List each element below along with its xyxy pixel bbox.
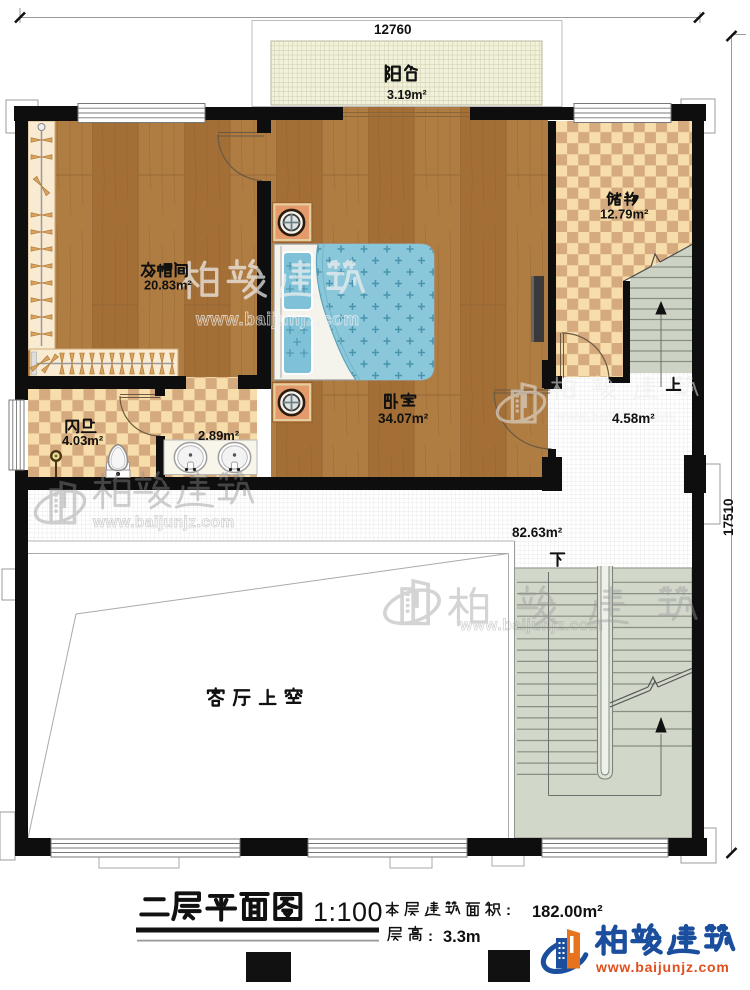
- svg-text:4.03m²: 4.03m²: [62, 433, 104, 448]
- svg-text::: :: [506, 902, 511, 919]
- svg-text:www.baijunjz.com: www.baijunjz.com: [595, 959, 730, 975]
- svg-text:3.3m: 3.3m: [443, 928, 481, 946]
- svg-text:www.baijunjz.com: www.baijunjz.com: [459, 617, 603, 634]
- svg-text:3.19m²: 3.19m²: [387, 88, 427, 102]
- svg-text::: :: [428, 928, 433, 945]
- svg-text:82.63m²: 82.63m²: [512, 525, 563, 540]
- svg-text:20.83m²: 20.83m²: [144, 278, 192, 293]
- svg-text:www.baijunjz.com: www.baijunjz.com: [195, 309, 360, 329]
- svg-text:182.00m²: 182.00m²: [532, 903, 603, 921]
- svg-text:34.07m²: 34.07m²: [378, 411, 429, 426]
- svg-text:17510: 17510: [721, 498, 736, 536]
- svg-text:www.baijunjz.com: www.baijunjz.com: [92, 514, 235, 531]
- svg-text:4.58m²: 4.58m²: [612, 411, 655, 426]
- svg-text:2.89m²: 2.89m²: [198, 428, 240, 443]
- svg-text:12760: 12760: [374, 22, 412, 37]
- svg-text:1:100: 1:100: [313, 897, 383, 927]
- svg-text:12.79m²: 12.79m²: [600, 207, 649, 222]
